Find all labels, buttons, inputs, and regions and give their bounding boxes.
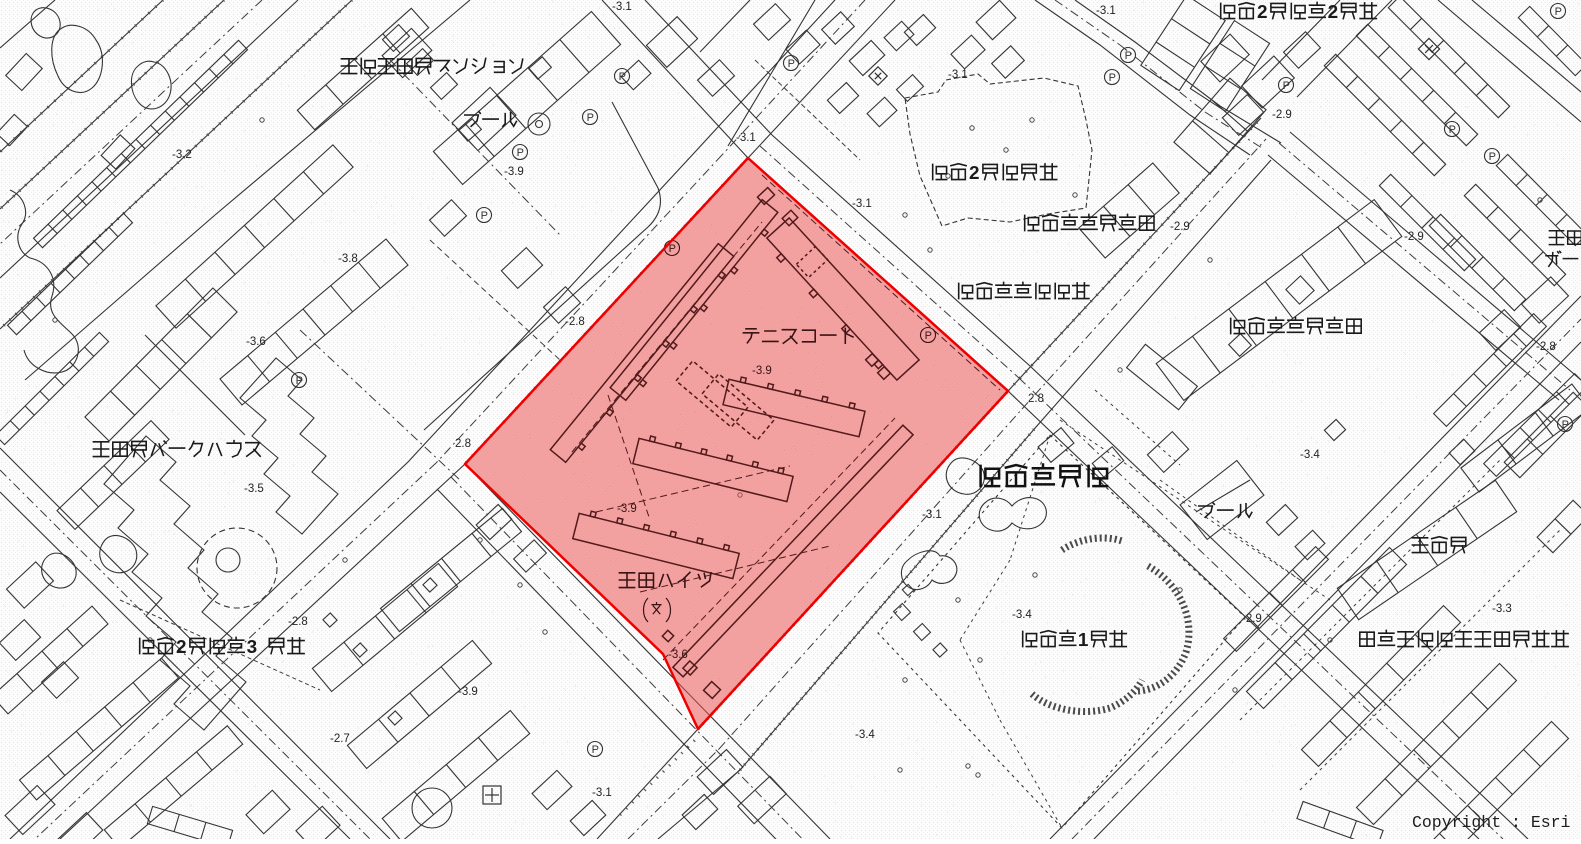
svg-text:1: 1 <box>1078 630 1089 651</box>
svg-text:-2.8: -2.8 <box>1536 341 1556 353</box>
svg-text:Copyright : Esri: Copyright : Esri <box>1412 813 1571 832</box>
svg-text:2: 2 <box>969 163 980 184</box>
svg-text:P: P <box>587 112 594 124</box>
svg-text:P: P <box>619 71 626 83</box>
svg-text:P: P <box>1555 6 1562 18</box>
svg-text:-3.9: -3.9 <box>617 503 637 515</box>
svg-text:-2.8: -2.8 <box>288 616 308 628</box>
svg-text:-3.2: -3.2 <box>172 149 192 161</box>
svg-text:-2.8: -2.8 <box>565 316 585 328</box>
svg-text:P: P <box>1562 419 1569 431</box>
svg-text:-2.9: -2.9 <box>1242 613 1262 625</box>
svg-text:-3.9: -3.9 <box>458 686 478 698</box>
svg-text:2: 2 <box>1257 2 1268 23</box>
svg-text:P: P <box>669 243 676 255</box>
svg-text:2: 2 <box>1328 2 1339 23</box>
svg-text:-3.9: -3.9 <box>504 166 524 178</box>
svg-text:P: P <box>1125 50 1132 62</box>
svg-text:-3.1: -3.1 <box>852 198 872 210</box>
svg-text:-3.8: -3.8 <box>338 253 358 265</box>
svg-text:P: P <box>1449 124 1456 136</box>
svg-text:-3.4: -3.4 <box>1300 449 1320 461</box>
svg-text:-2.7: -2.7 <box>330 733 350 745</box>
svg-text:P: P <box>592 744 599 756</box>
svg-text:-3.1: -3.1 <box>736 132 756 144</box>
svg-text:-3.1: -3.1 <box>948 69 968 81</box>
svg-text:3: 3 <box>247 637 258 658</box>
svg-text:2: 2 <box>176 637 187 658</box>
svg-text:2.8: 2.8 <box>455 438 471 450</box>
svg-text:-3.1: -3.1 <box>922 509 942 521</box>
svg-text:P: P <box>925 330 932 342</box>
svg-text:2.8: 2.8 <box>1028 393 1044 405</box>
svg-text:P: P <box>296 375 303 387</box>
svg-text:-2.9: -2.9 <box>1404 231 1424 243</box>
svg-text:P: P <box>1283 80 1290 92</box>
svg-text:P: P <box>481 210 488 222</box>
svg-text:-3.5: -3.5 <box>244 483 264 495</box>
svg-text:-3.1: -3.1 <box>1096 5 1116 17</box>
svg-text:P: P <box>1109 72 1116 84</box>
svg-text:-2.9: -2.9 <box>1170 221 1190 233</box>
svg-text:-3.6: -3.6 <box>246 336 266 348</box>
svg-text:-3.4: -3.4 <box>855 729 875 741</box>
svg-text:P: P <box>517 147 524 159</box>
svg-text:-3.1: -3.1 <box>592 787 612 799</box>
svg-text:-2.9: -2.9 <box>1272 109 1292 121</box>
svg-text:-3.6: -3.6 <box>668 649 688 661</box>
svg-text:P: P <box>1489 151 1496 163</box>
svg-text:-3.3: -3.3 <box>1492 603 1512 615</box>
svg-text:-3.4: -3.4 <box>1012 609 1032 621</box>
svg-text:-3.9: -3.9 <box>752 365 772 377</box>
svg-text:-3.1: -3.1 <box>612 1 632 13</box>
svg-text:P: P <box>788 58 795 70</box>
